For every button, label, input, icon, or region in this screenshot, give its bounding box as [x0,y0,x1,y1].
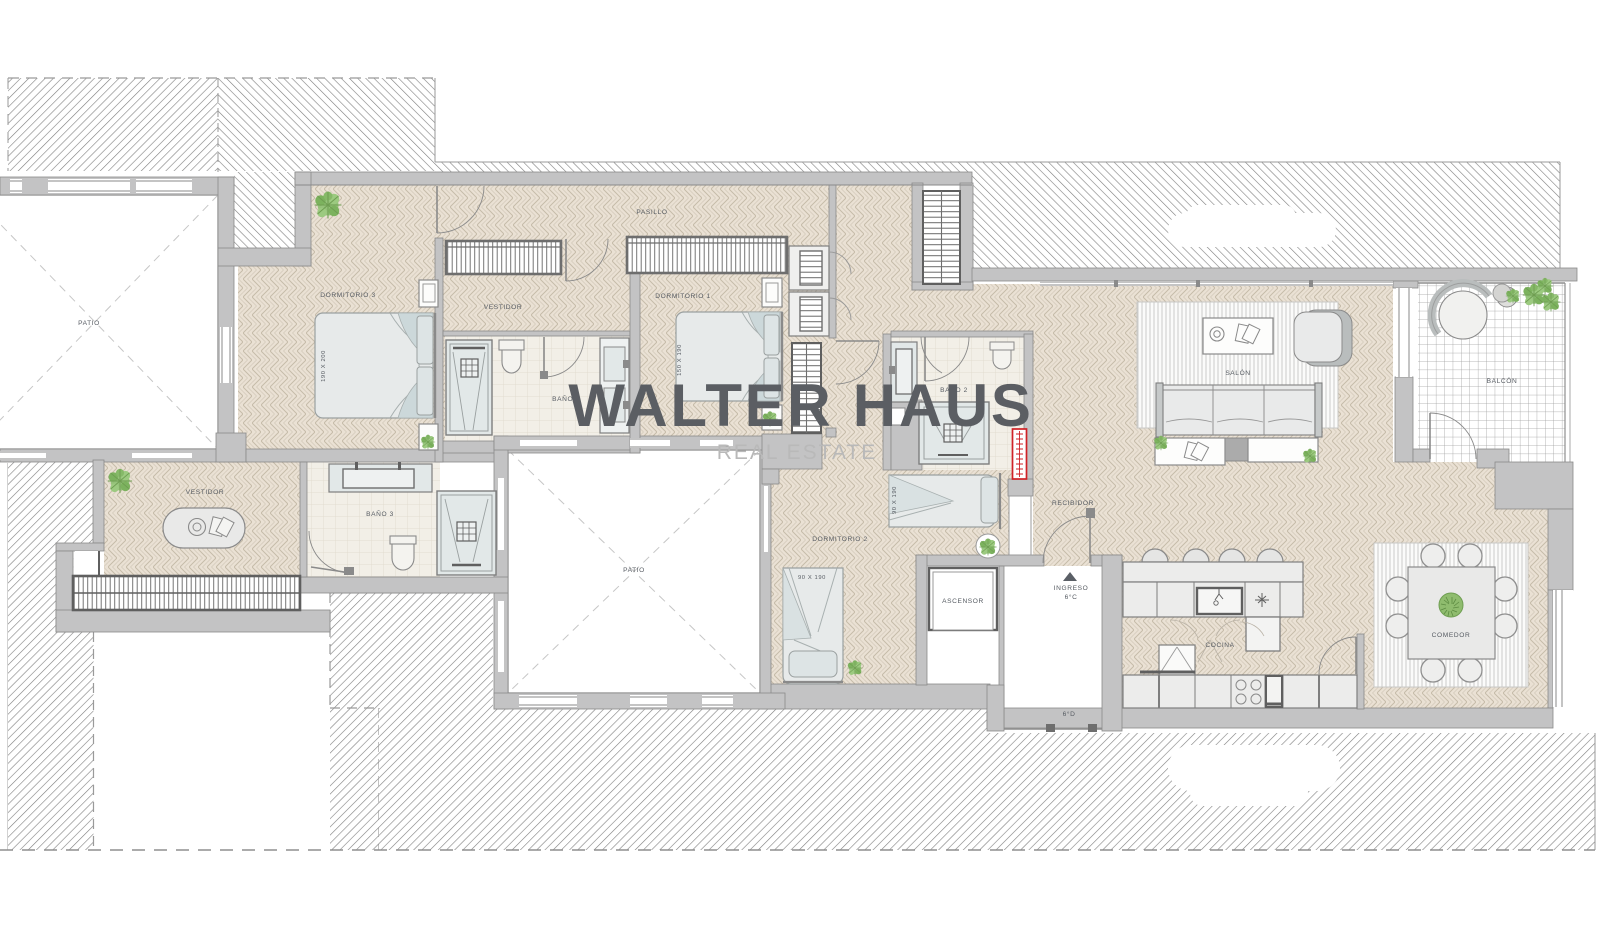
svg-text:BAÑO 3: BAÑO 3 [366,509,394,518]
svg-text:DORMITORIO 2: DORMITORIO 2 [812,536,867,543]
svg-text:DORMITORIO 3: DORMITORIO 3 [320,292,375,299]
svg-text:REAL ESTATE: REAL ESTATE [717,441,877,464]
svg-text:PASILLO: PASILLO [636,209,667,216]
svg-text:90 X 190: 90 X 190 [798,575,826,581]
svg-text:DORMITORIO 1: DORMITORIO 1 [655,293,710,300]
svg-text:SALÓN: SALÓN [1225,368,1250,377]
svg-text:190 X 200: 190 X 200 [321,350,327,382]
svg-text:PATIO: PATIO [623,567,645,574]
svg-text:WALTER HAUS: WALTER HAUS [568,372,1033,439]
svg-text:BALCÓN: BALCÓN [1487,376,1518,385]
svg-text:INGRESO: INGRESO [1054,585,1089,592]
svg-text:90 X 190: 90 X 190 [892,486,898,514]
svg-text:6°C: 6°C [1065,593,1078,601]
svg-text:RECIBIDOR: RECIBIDOR [1052,500,1094,507]
svg-text:VESTIDOR: VESTIDOR [186,489,225,496]
svg-text:PATIO: PATIO [78,320,100,327]
svg-text:6°D: 6°D [1063,710,1076,718]
svg-text:COCINA: COCINA [1205,642,1234,649]
svg-text:ASCENSOR: ASCENSOR [942,598,984,605]
svg-text:COMEDOR: COMEDOR [1432,632,1471,639]
svg-text:VESTIDOR: VESTIDOR [484,304,523,311]
